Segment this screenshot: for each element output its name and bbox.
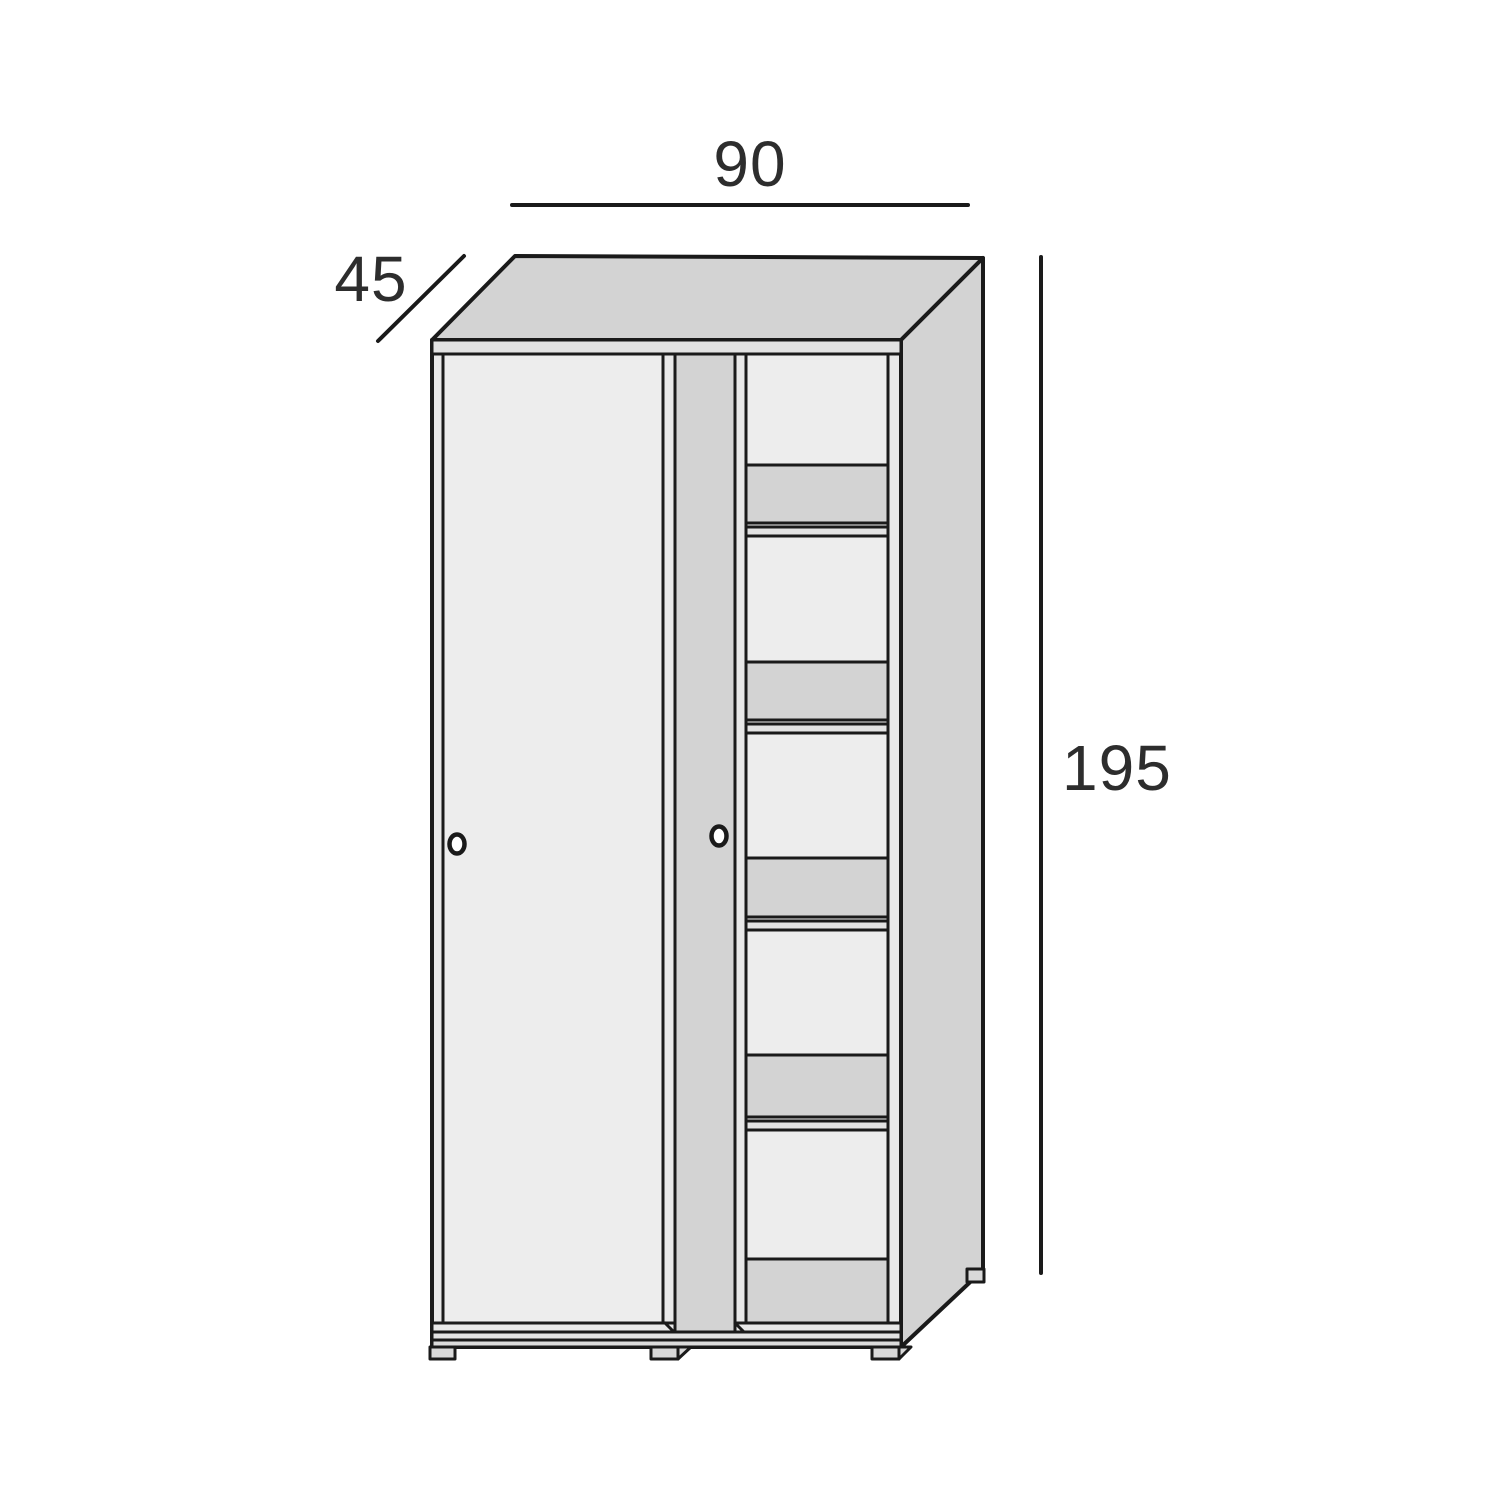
foot-center-bevel xyxy=(678,1347,691,1359)
shelf-band-2 xyxy=(746,662,888,720)
foot-right-front xyxy=(872,1347,899,1359)
shelf-band-5 xyxy=(746,1259,888,1323)
width-dimension-label: 90 xyxy=(713,128,786,200)
foot-center xyxy=(651,1347,678,1359)
shelf-edge-strip-1 xyxy=(746,527,888,536)
shelf-band-1 xyxy=(746,465,888,523)
shelf-band-4 xyxy=(746,1055,888,1117)
foot-right-back xyxy=(967,1269,984,1282)
shelf-edge-strip-2 xyxy=(746,724,888,733)
left-sliding-door xyxy=(443,354,663,1323)
shelf-band-3 xyxy=(746,858,888,917)
height-dimension-label: 195 xyxy=(1062,732,1172,804)
shelf-edge-strip-4 xyxy=(746,1121,888,1130)
foot-right-front-bevel xyxy=(899,1347,911,1359)
wardrobe-dimension-diagram: 90 45 195 xyxy=(0,0,1500,1500)
foot-left xyxy=(430,1347,455,1359)
wardrobe-side-panel xyxy=(901,258,983,1347)
top-front-rail xyxy=(432,340,901,354)
diagram-canvas: 90 45 195 xyxy=(0,0,1500,1500)
wardrobe-drawing xyxy=(430,256,984,1359)
left-door-handle xyxy=(450,835,465,854)
shelf-column xyxy=(746,354,888,1323)
shelf-edge-strip-3 xyxy=(746,921,888,930)
wardrobe-top-face xyxy=(432,256,983,340)
depth-dimension-label: 45 xyxy=(334,243,407,315)
right-door-handle xyxy=(712,827,727,846)
